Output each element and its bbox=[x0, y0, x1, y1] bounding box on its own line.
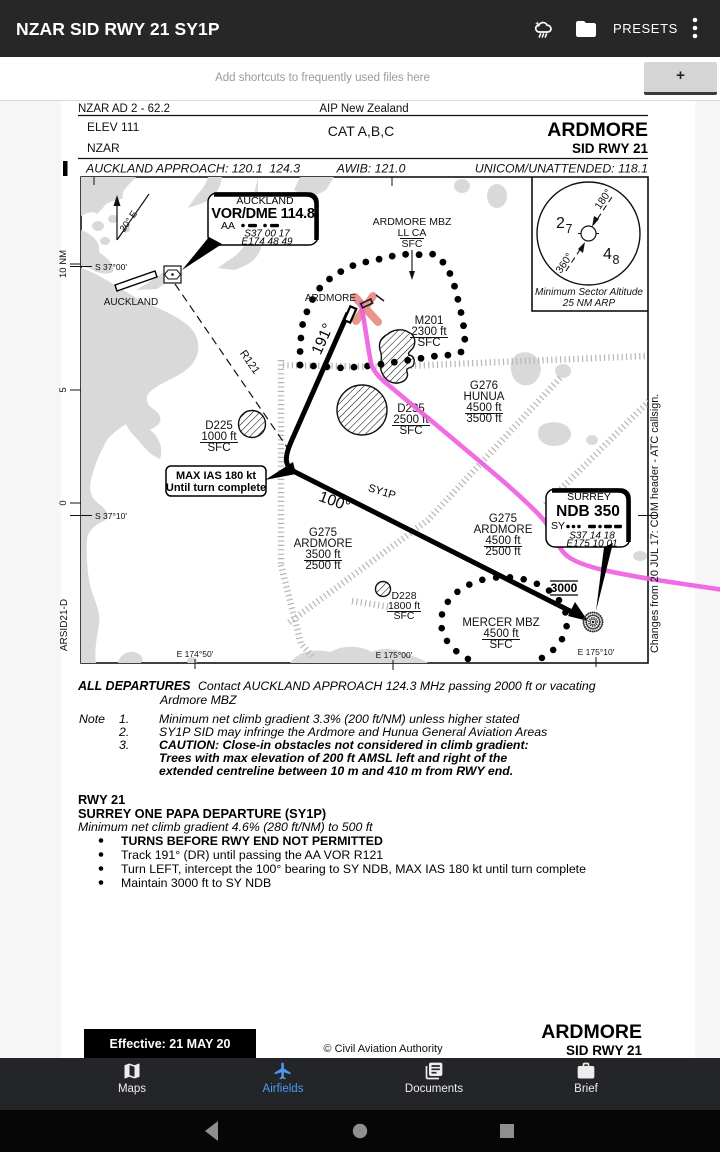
svg-text:3.: 3. bbox=[119, 738, 129, 752]
svg-text:SFC: SFC bbox=[400, 425, 423, 437]
svg-text:AWIB: 121.0: AWIB: 121.0 bbox=[336, 162, 406, 176]
svg-text:RWY 21: RWY 21 bbox=[78, 792, 125, 807]
svg-text:SURREY: SURREY bbox=[567, 491, 611, 503]
svg-text:SFC: SFC bbox=[208, 442, 231, 454]
svg-text:ARDMORE: ARDMORE bbox=[305, 293, 356, 304]
svg-text:3000: 3000 bbox=[551, 581, 578, 595]
svg-text:2500 ft: 2500 ft bbox=[485, 546, 521, 558]
svg-text:Turn LEFT, intercept the 100°: Turn LEFT, intercept the 100° bearing to… bbox=[121, 862, 586, 876]
svg-text:CAT A,B,C: CAT A,B,C bbox=[328, 123, 394, 139]
svg-text:0: 0 bbox=[58, 500, 69, 505]
svg-text:Minimum net climb gradient 4.6: Minimum net climb gradient 4.6% (280 ft/… bbox=[78, 820, 373, 834]
svg-text:25 NM ARP: 25 NM ARP bbox=[562, 298, 616, 309]
svg-text:S 37°10': S 37°10' bbox=[95, 511, 127, 521]
svg-text:Effective: 21 MAY 20: Effective: 21 MAY 20 bbox=[110, 1037, 231, 1051]
svg-text:NDB 350: NDB 350 bbox=[556, 503, 620, 520]
svg-text:4: 4 bbox=[603, 246, 612, 263]
svg-text:E174 48 49: E174 48 49 bbox=[241, 237, 293, 248]
svg-text:CAUTION: Close-in obstacles no: CAUTION: Close-in obstacles not consider… bbox=[159, 738, 529, 752]
svg-text:SY: SY bbox=[551, 520, 565, 532]
svg-text:SFC: SFC bbox=[394, 610, 415, 622]
svg-text:SFC: SFC bbox=[490, 639, 513, 651]
svg-text:ARSID21-D: ARSID21-D bbox=[59, 599, 70, 651]
svg-text:AUCKLAND APPROACH: 120.1 124.: AUCKLAND APPROACH: 120.1 124.3 bbox=[85, 162, 300, 176]
svg-text:S 37°00': S 37°00' bbox=[95, 262, 127, 272]
svg-text:NZAR AD 2 - 62.2: NZAR AD 2 - 62.2 bbox=[78, 103, 170, 115]
svg-text:2.: 2. bbox=[118, 725, 129, 739]
svg-text:3500 ft: 3500 ft bbox=[466, 413, 502, 425]
svg-text:Note: Note bbox=[79, 712, 105, 726]
svg-text:Contact AUCKLAND APPROACH 124.: Contact AUCKLAND APPROACH 124.3 MHz pass… bbox=[198, 679, 596, 693]
svg-text:E175 10 01: E175 10 01 bbox=[566, 539, 617, 550]
svg-text:E 174°50': E 174°50' bbox=[177, 649, 214, 659]
svg-text:AUCKLAND: AUCKLAND bbox=[104, 297, 158, 308]
svg-text:ELEV 111: ELEV 111 bbox=[87, 120, 140, 134]
svg-text:ARDMORE: ARDMORE bbox=[541, 1021, 642, 1043]
svg-text:UNICOM/UNATTENDED: 118.1: UNICOM/UNATTENDED: 118.1 bbox=[475, 162, 648, 176]
svg-text:ARDMORE: ARDMORE bbox=[547, 119, 648, 141]
svg-text:SFC: SFC bbox=[418, 337, 441, 349]
svg-text:© Civil Aviation Authority: © Civil Aviation Authority bbox=[323, 1043, 443, 1055]
svg-text:AIP New Zealand: AIP New Zealand bbox=[319, 103, 408, 115]
svg-text:NZAR: NZAR bbox=[87, 141, 120, 155]
svg-text:Until turn complete: Until turn complete bbox=[166, 482, 266, 494]
svg-text:ALL DEPARTURES: ALL DEPARTURES bbox=[77, 679, 191, 693]
svg-text:5: 5 bbox=[58, 387, 69, 392]
svg-text:2500 ft: 2500 ft bbox=[305, 560, 341, 572]
svg-text:Track 191° (DR) until passing: Track 191° (DR) until passing the AA VOR… bbox=[121, 848, 383, 862]
svg-text:10 NM: 10 NM bbox=[58, 250, 69, 278]
svg-text:SFC: SFC bbox=[402, 238, 423, 250]
svg-text:Ardmore MBZ: Ardmore MBZ bbox=[159, 693, 237, 707]
svg-text:TURNS BEFORE RWY END NOT PERMI: TURNS BEFORE RWY END NOT PERMITTED bbox=[121, 834, 383, 848]
svg-text:Minimum Sector Altitude: Minimum Sector Altitude bbox=[535, 287, 643, 298]
svg-text:Trees with max elevation of 20: Trees with max elevation of 200 ft AMSL … bbox=[159, 751, 507, 765]
svg-text:1.: 1. bbox=[119, 712, 129, 726]
svg-text:Minimum net climb gradient 3.3: Minimum net climb gradient 3.3% (200 ft/… bbox=[159, 712, 520, 726]
svg-text:E 175°10': E 175°10' bbox=[578, 647, 615, 657]
svg-text:7: 7 bbox=[566, 222, 573, 236]
svg-text:8: 8 bbox=[613, 253, 620, 267]
svg-text:MAX IAS 180 kt: MAX IAS 180 kt bbox=[176, 470, 256, 482]
svg-text:E 175°00': E 175°00' bbox=[376, 650, 413, 660]
svg-text:AA: AA bbox=[221, 220, 235, 232]
svg-text:SURREY ONE PAPA DEPARTURE (SY1: SURREY ONE PAPA DEPARTURE (SY1P) bbox=[78, 806, 326, 821]
svg-text:Maintain 3000 ft to SY NDB: Maintain 3000 ft to SY NDB bbox=[121, 876, 271, 890]
svg-text:SY1P SID may infringe the Ardm: SY1P SID may infringe the Ardmore and Hu… bbox=[159, 725, 547, 739]
svg-text:extended centreline between 10: extended centreline between 10 m and 410… bbox=[159, 764, 513, 778]
svg-text:2: 2 bbox=[556, 215, 565, 232]
svg-text:SID RWY 21: SID RWY 21 bbox=[566, 1043, 643, 1058]
svg-text:Changes from 20 JUL 17: COM he: Changes from 20 JUL 17: COM header - ATC… bbox=[649, 394, 661, 653]
svg-text:SID RWY 21: SID RWY 21 bbox=[572, 141, 649, 156]
